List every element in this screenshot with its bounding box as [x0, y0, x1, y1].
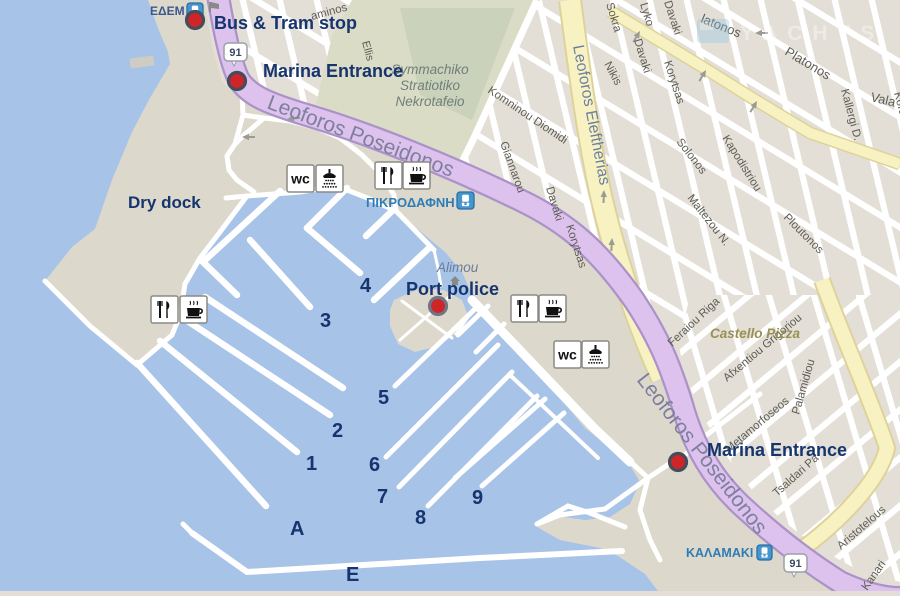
svg-text:Bus & Tram stop: Bus & Tram stop: [214, 13, 357, 33]
svg-text:YACHTS: YACHTS: [740, 22, 884, 45]
svg-text:Port police: Port police: [406, 279, 499, 299]
svg-text:Dry dock: Dry dock: [128, 193, 201, 212]
svg-text:Marina Entrance: Marina Entrance: [707, 440, 847, 460]
svg-text:7: 7: [377, 486, 388, 508]
svg-text:91: 91: [229, 47, 241, 59]
svg-text:9: 9: [472, 487, 483, 509]
svg-text:Castello Pizza: Castello Pizza: [710, 326, 801, 341]
svg-text:2: 2: [332, 420, 343, 442]
svg-text:A: A: [290, 518, 304, 540]
svg-text:ΠΙΚΡΟΔΑΦΝΗ: ΠΙΚΡΟΔΑΦΝΗ: [366, 195, 455, 210]
svg-text:wc: wc: [557, 347, 577, 363]
svg-text:3: 3: [320, 310, 331, 332]
svg-text:Nekrotafeio: Nekrotafeio: [395, 94, 465, 109]
svg-text:wc: wc: [290, 171, 310, 187]
svg-text:1: 1: [306, 453, 317, 475]
svg-text:6: 6: [369, 454, 380, 476]
svg-text:91: 91: [789, 558, 801, 570]
svg-text:E: E: [346, 564, 359, 586]
svg-text:4: 4: [360, 275, 372, 297]
svg-text:Alimou: Alimou: [436, 260, 479, 275]
svg-text:ΕΔΕΜ: ΕΔΕΜ: [150, 4, 185, 18]
svg-text:ΚΑΛΑΜΑΚΙ: ΚΑΛΑΜΑΚΙ: [686, 546, 753, 560]
svg-text:Stratiotiko: Stratiotiko: [400, 78, 461, 93]
svg-text:Marina Entrance: Marina Entrance: [263, 61, 403, 81]
svg-text:8: 8: [415, 507, 426, 529]
svg-text:5: 5: [378, 387, 389, 409]
